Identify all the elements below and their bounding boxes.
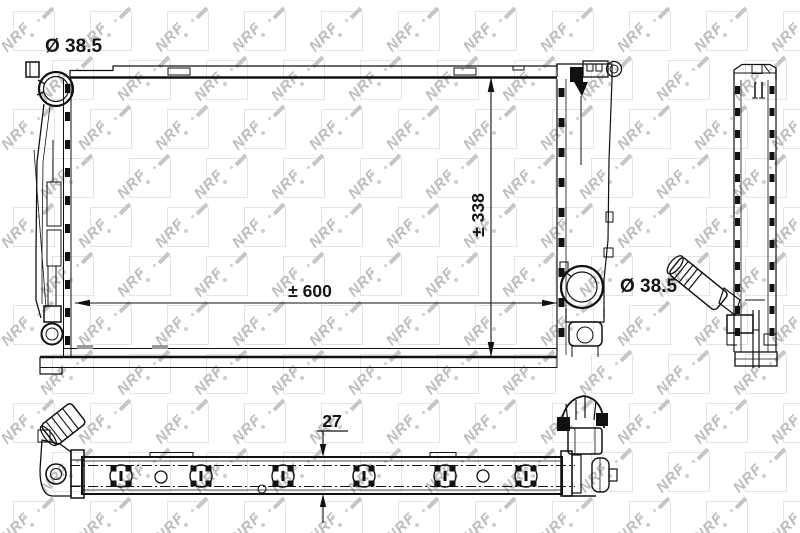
core-height-label: ± 338 xyxy=(468,193,488,237)
dimension-inlet-diameter: Ø 38.5 xyxy=(45,36,102,57)
splined-holes xyxy=(110,465,537,487)
front-view xyxy=(26,61,622,374)
dimension-core-height: ± 338 xyxy=(468,77,494,357)
dimension-bottom-thickness: 27 xyxy=(317,411,348,523)
inlet-diameter-label: Ø 38.5 xyxy=(45,36,102,57)
bottom-left-fitting xyxy=(37,402,86,498)
side-view xyxy=(664,65,777,369)
dimension-outlet-diameter: Ø 38.5 xyxy=(620,276,677,297)
technical-drawing-page: NRFNRFNRFNRFNRFNRFNRFNRFNRFNRFNRFNRFNRFN… xyxy=(0,0,800,533)
bottom-right-fitting xyxy=(557,396,617,496)
dimension-core-width: ± 600 xyxy=(75,281,557,306)
bottom-thickness-label: 27 xyxy=(322,411,341,431)
radiator-drawing: ± 600 ± 338 Ø 38.5 Ø 38.5 27 xyxy=(0,0,800,533)
core-width-label: ± 600 xyxy=(288,281,332,301)
outlet-diameter-label: Ø 38.5 xyxy=(620,276,677,297)
